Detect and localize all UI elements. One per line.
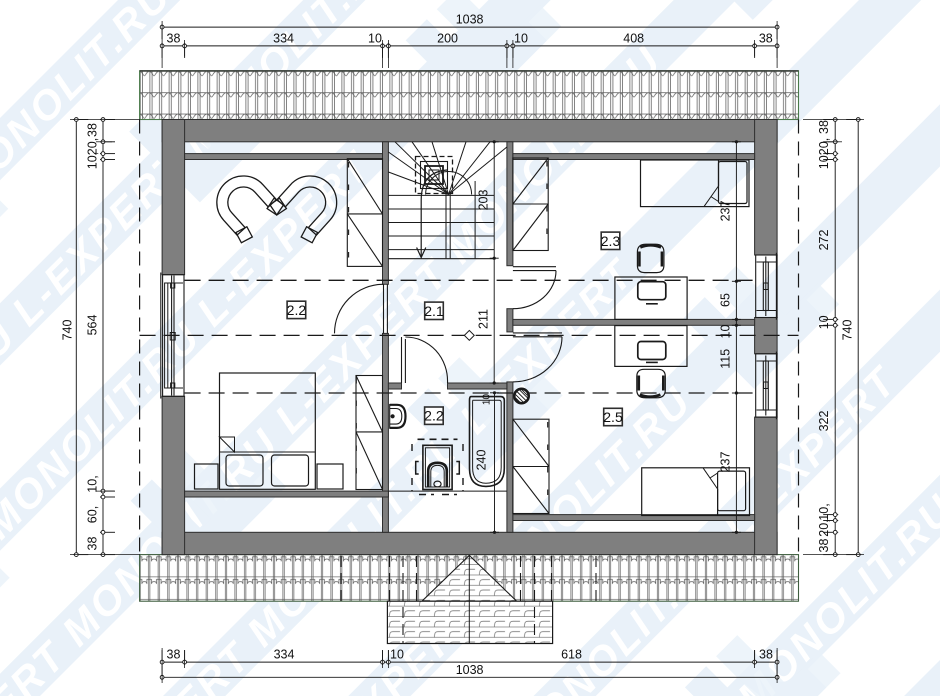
svg-text:10: 10 [368,31,382,45]
svg-text:38: 38 [817,120,831,134]
svg-text:65: 65 [718,293,732,307]
svg-text:10,: 10, [817,503,831,520]
svg-text:10: 10 [817,315,831,329]
svg-text:20,: 20, [817,519,831,536]
svg-text:2.5: 2.5 [603,409,623,425]
svg-text:2.2: 2.2 [287,302,307,318]
svg-text:200: 200 [437,31,458,45]
svg-text:L-EXPERT MONOLIT.RU L-EXPERT: L-EXPERT MONOLIT.RU L-EXPERT MONOLIT.RU … [0,142,380,696]
svg-text:334: 334 [274,648,295,662]
svg-text:38: 38 [167,31,181,45]
svg-text:1038: 1038 [456,13,484,27]
svg-text:740: 740 [61,320,75,341]
svg-text:1038: 1038 [456,663,484,677]
svg-text:2.1: 2.1 [424,303,444,319]
svg-text:10,: 10, [817,152,831,169]
svg-text:38: 38 [759,648,773,662]
svg-text:10: 10 [514,31,528,45]
svg-text:38: 38 [86,123,100,137]
svg-text:322: 322 [817,411,831,432]
svg-text:10,: 10, [86,475,100,492]
svg-text:237: 237 [718,452,732,473]
svg-text:38: 38 [86,537,100,551]
svg-text:10: 10 [718,325,732,339]
svg-text:10,: 10, [86,152,100,169]
svg-text:115: 115 [718,349,732,369]
svg-text:38: 38 [759,31,773,45]
svg-text:38: 38 [167,648,181,662]
svg-text:564: 564 [86,315,100,336]
svg-text:334: 334 [273,31,294,45]
svg-text:237: 237 [718,201,732,222]
svg-text:240: 240 [475,450,489,471]
svg-text:2.3: 2.3 [601,233,621,249]
svg-text:740: 740 [840,320,854,341]
svg-text:10: 10 [390,648,404,662]
svg-text:618: 618 [561,648,582,662]
svg-text:60,: 60, [86,506,100,523]
svg-text:211: 211 [476,309,490,329]
svg-text:38: 38 [817,539,831,553]
svg-text:408: 408 [623,31,644,45]
svg-text:10: 10 [482,394,493,406]
svg-text:203: 203 [476,190,490,211]
svg-text:2.2: 2.2 [424,408,444,424]
svg-text:272: 272 [817,230,831,251]
